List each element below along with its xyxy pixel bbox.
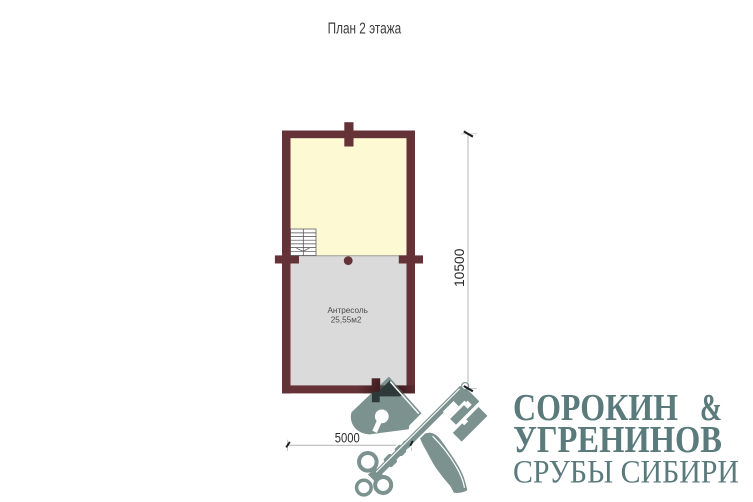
svg-text:Антресоль: Антресоль [327,306,367,315]
svg-text:СРУБЫ СИБИРИ: СРУБЫ СИБИРИ [513,454,739,490]
svg-text:План 2 этажа: План 2 этажа [328,21,402,38]
svg-text:10500: 10500 [452,249,467,288]
svg-text:25,55м2: 25,55м2 [331,316,362,325]
svg-text:5000: 5000 [335,431,360,446]
